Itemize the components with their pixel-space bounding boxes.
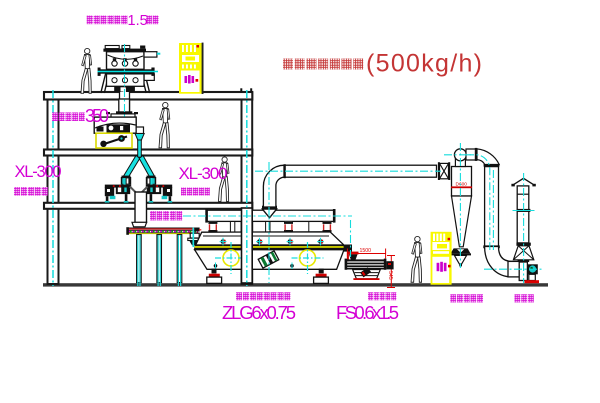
svg-text:1.5: 1.5 bbox=[128, 13, 148, 29]
svg-text:350: 350 bbox=[85, 106, 109, 126]
svg-text:(500kg/h): (500kg/h) bbox=[366, 50, 482, 78]
svg-text:545: 545 bbox=[387, 271, 393, 280]
svg-text:XL-300: XL-300 bbox=[179, 164, 228, 183]
svg-text:D600: D600 bbox=[456, 181, 468, 187]
svg-text:XL-300: XL-300 bbox=[15, 163, 62, 181]
svg-text:FS0.6x1.5: FS0.6x1.5 bbox=[336, 302, 399, 323]
svg-text:ZLG6x0.75: ZLG6x0.75 bbox=[222, 302, 296, 323]
svg-text:1500: 1500 bbox=[360, 248, 372, 254]
